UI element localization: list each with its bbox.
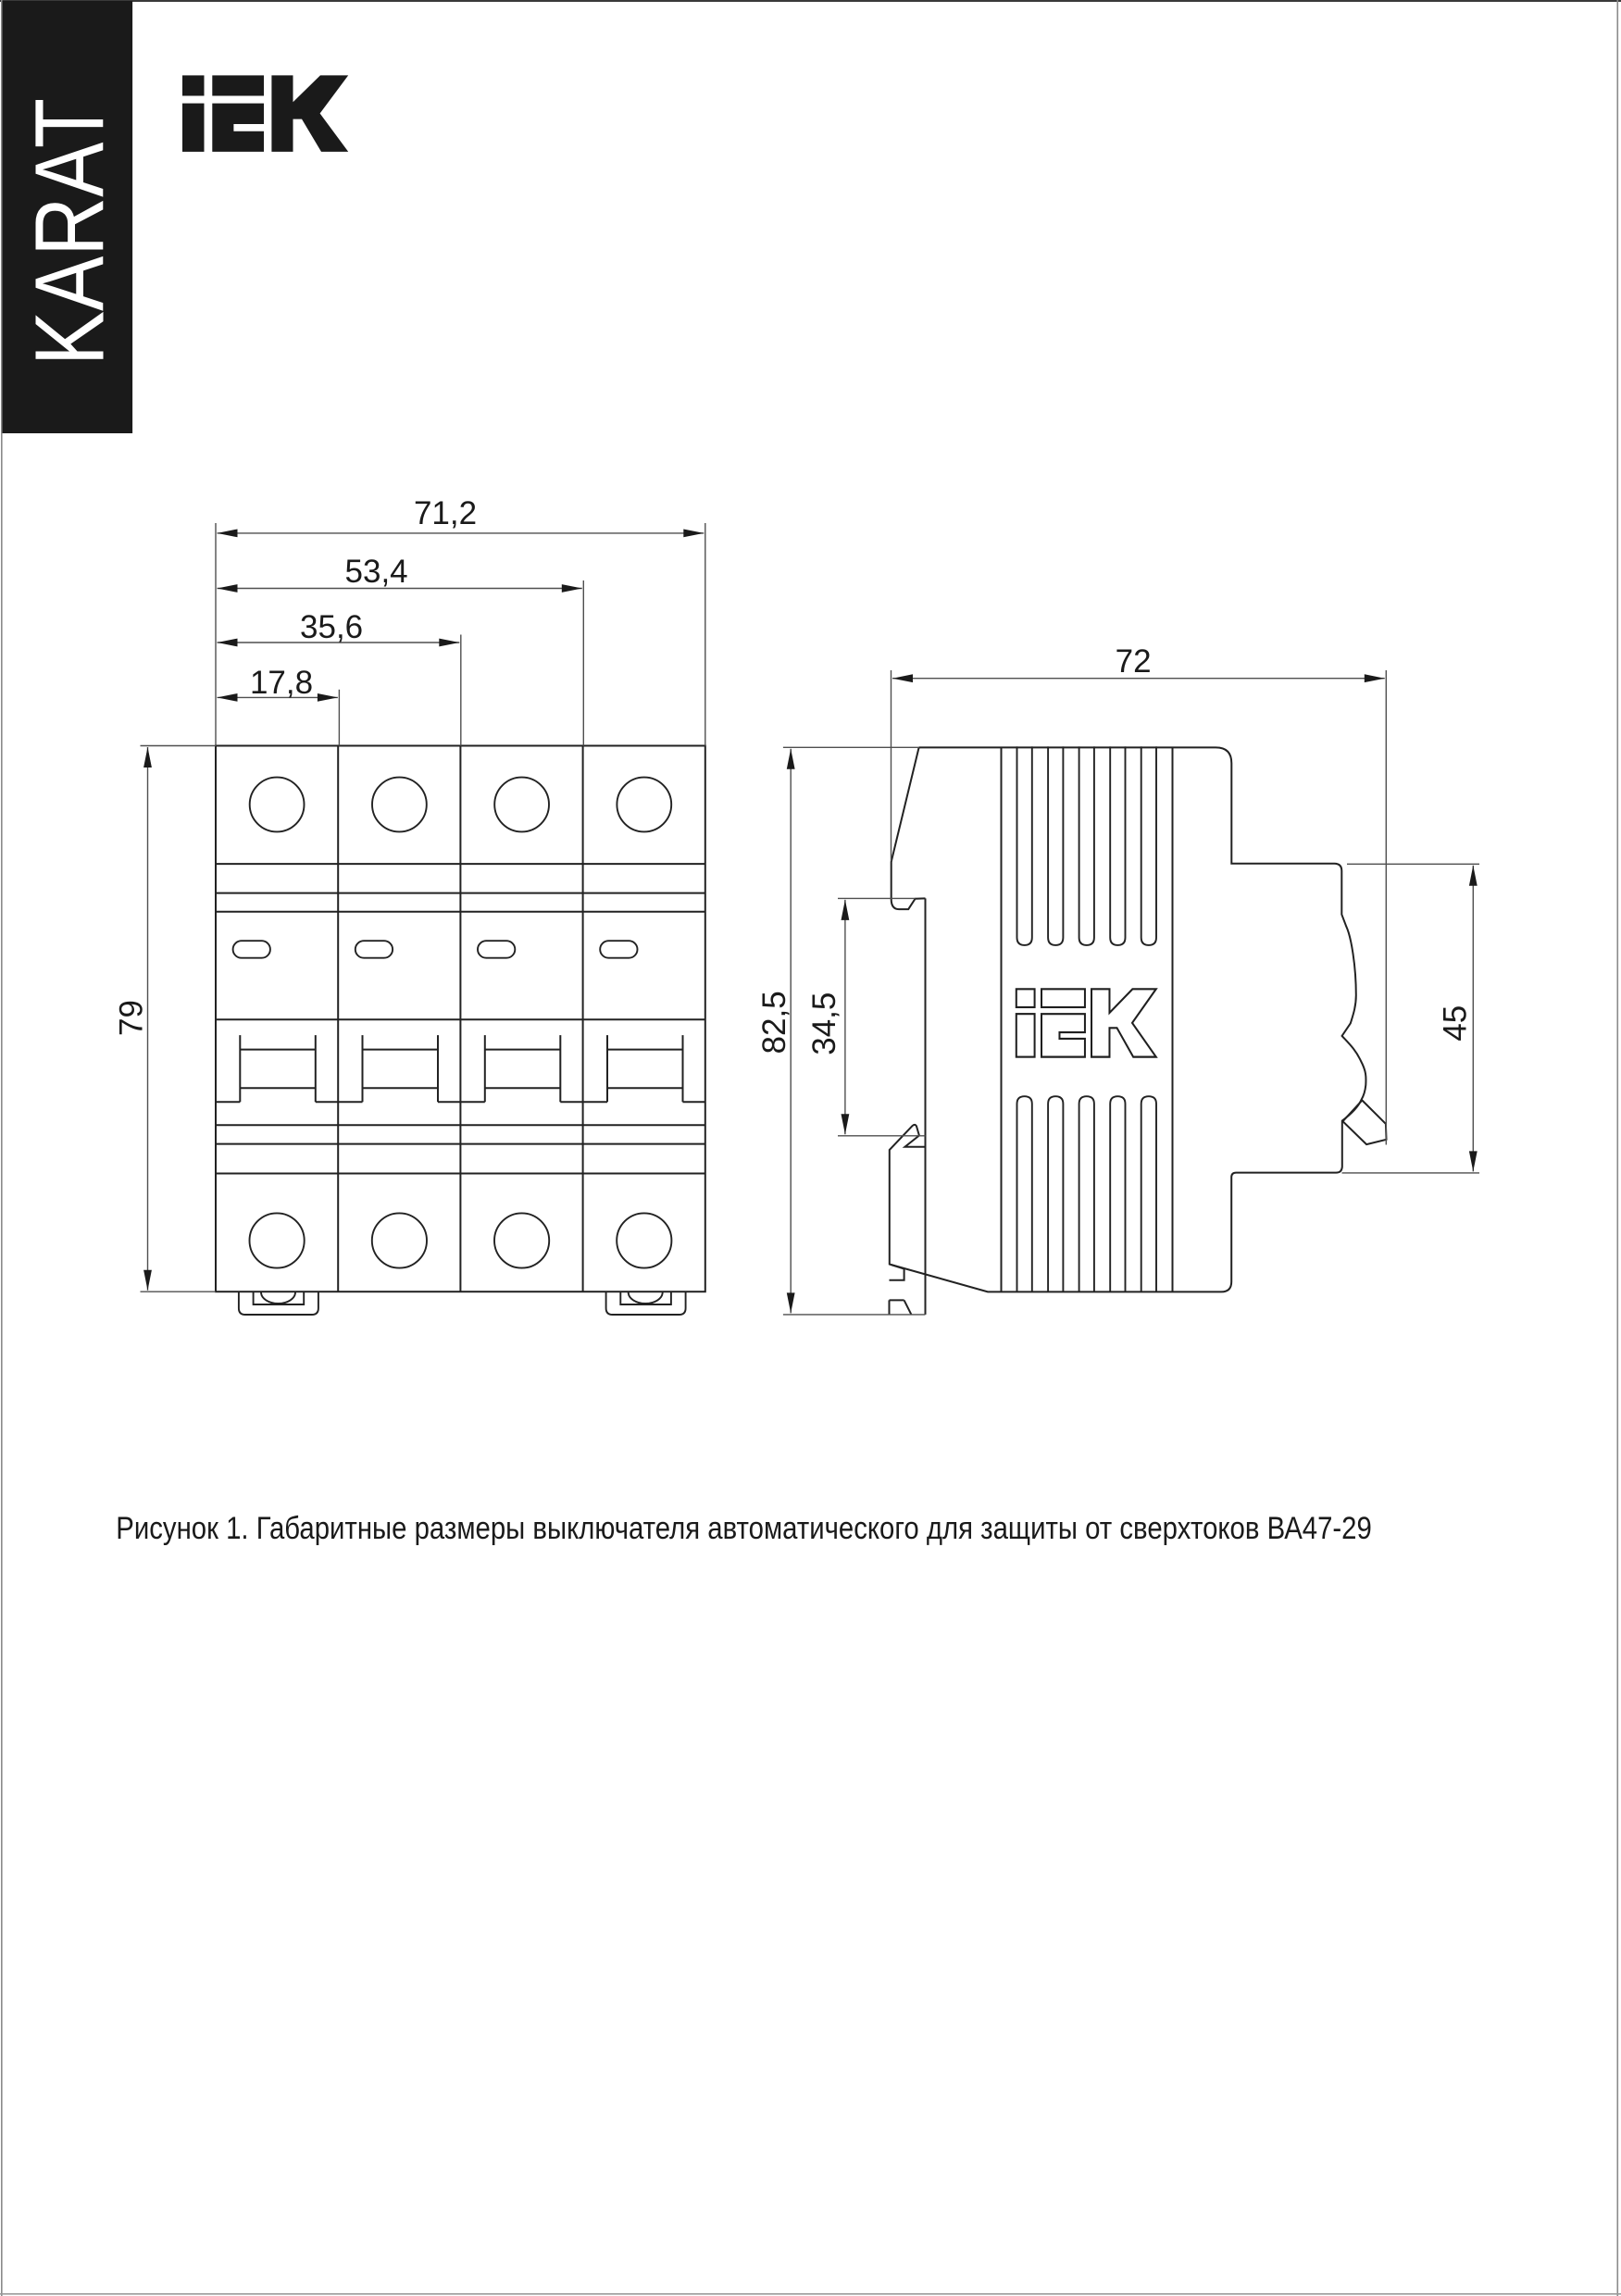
- svg-text:82,5: 82,5: [756, 991, 792, 1054]
- svg-text:17,8: 17,8: [250, 665, 313, 701]
- svg-text:Рисунок 1. Габаритные размеры: Рисунок 1. Габаритные размеры выключател…: [116, 1511, 1372, 1546]
- svg-text:72: 72: [1116, 643, 1152, 680]
- svg-text:79: 79: [114, 1000, 150, 1036]
- svg-text:53,4: 53,4: [345, 554, 408, 590]
- svg-text:45: 45: [1437, 1005, 1473, 1042]
- svg-text:34,5: 34,5: [806, 992, 842, 1055]
- svg-text:KARAT: KARAT: [16, 98, 125, 366]
- svg-text:35,6: 35,6: [300, 609, 363, 645]
- svg-text:71,2: 71,2: [414, 495, 477, 531]
